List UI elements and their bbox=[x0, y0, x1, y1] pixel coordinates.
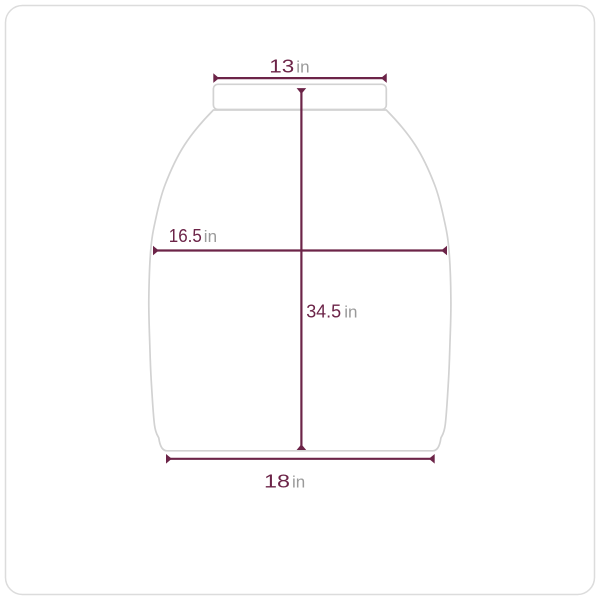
svg-text:34.5in: 34.5in bbox=[306, 302, 357, 322]
svg-text:13in: 13in bbox=[269, 57, 309, 77]
svg-text:16.5in: 16.5in bbox=[169, 226, 217, 246]
svg-text:18in: 18in bbox=[264, 471, 305, 491]
